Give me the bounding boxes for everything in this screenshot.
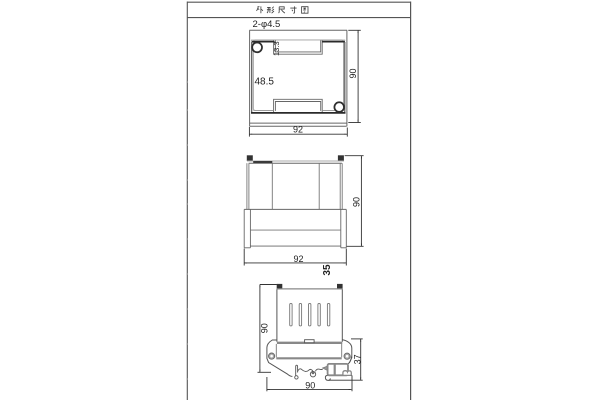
svg-text:13.3: 13.3 xyxy=(272,41,281,56)
svg-text:37: 37 xyxy=(352,354,362,364)
svg-text:48.5: 48.5 xyxy=(255,77,275,88)
svg-text:90: 90 xyxy=(351,197,361,207)
svg-text:92: 92 xyxy=(294,254,304,264)
svg-text:92: 92 xyxy=(293,124,303,134)
svg-text:90: 90 xyxy=(260,323,270,333)
svg-text:90: 90 xyxy=(305,381,315,391)
svg-text:35: 35 xyxy=(322,264,333,276)
svg-text:90: 90 xyxy=(348,68,358,78)
svg-text:2-φ4.5: 2-φ4.5 xyxy=(253,19,281,30)
